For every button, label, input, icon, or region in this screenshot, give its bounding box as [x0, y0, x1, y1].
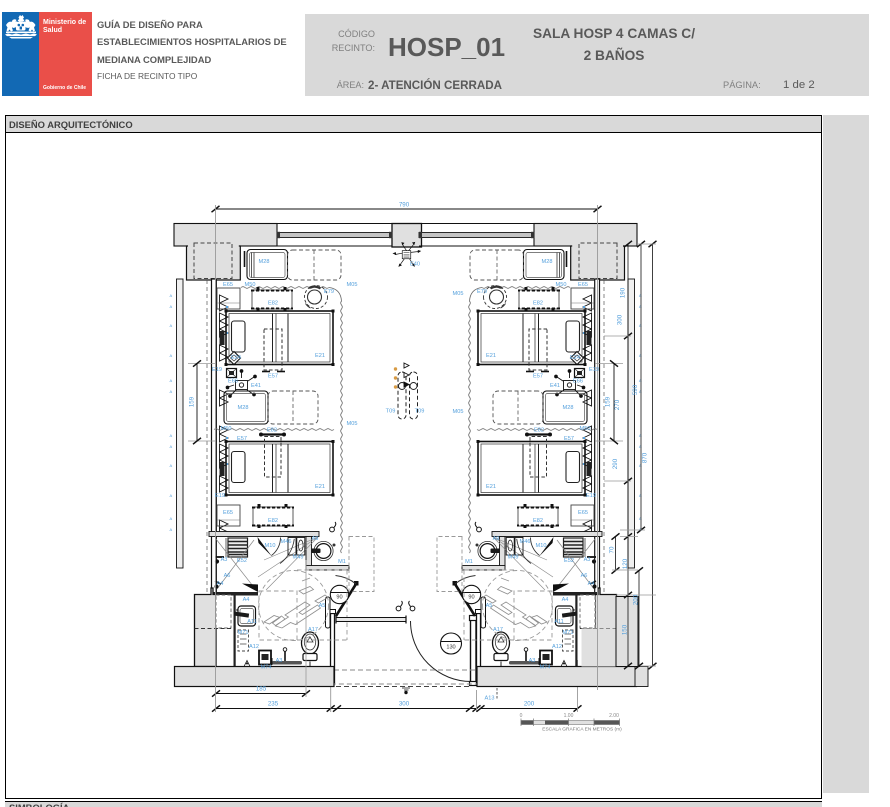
svg-text:M28: M28	[542, 259, 553, 265]
svg-text:A: A	[170, 304, 173, 309]
svg-text:A6: A6	[581, 573, 588, 579]
svg-text:200: 200	[524, 701, 535, 708]
svg-text:E40: E40	[410, 262, 420, 268]
svg-text:M46: M46	[281, 539, 292, 545]
svg-text:A: A	[170, 433, 173, 438]
svg-text:M49: M49	[508, 555, 519, 561]
svg-text:150: 150	[622, 624, 629, 635]
svg-text:90: 90	[336, 595, 342, 601]
svg-text:A4: A4	[562, 597, 569, 603]
svg-text:M10: M10	[265, 543, 276, 549]
svg-text:120: 120	[622, 558, 629, 569]
svg-text:E41: E41	[550, 383, 560, 389]
svg-text:M50: M50	[556, 282, 567, 288]
svg-text:E82: E82	[534, 428, 544, 434]
svg-text:E19: E19	[215, 493, 225, 499]
svg-text:870: 870	[642, 452, 649, 463]
svg-text:A: A	[170, 444, 173, 449]
svg-text:A5: A5	[486, 603, 493, 609]
svg-text:A13: A13	[485, 696, 495, 702]
svg-text:A: A	[170, 323, 173, 328]
svg-text:130: 130	[446, 645, 455, 651]
svg-text:A3: A3	[584, 557, 591, 563]
svg-text:E52: E52	[564, 558, 574, 564]
svg-text:M50: M50	[245, 282, 256, 288]
svg-text:A9: A9	[312, 536, 319, 542]
svg-text:A: A	[170, 293, 173, 298]
svg-text:A: A	[170, 463, 173, 468]
svg-text:A5: A5	[319, 603, 326, 609]
svg-text:190: 190	[620, 287, 627, 298]
svg-text:90: 90	[468, 595, 474, 601]
svg-text:E82: E82	[533, 518, 543, 524]
svg-text:0: 0	[520, 713, 523, 719]
svg-text:M50: M50	[221, 426, 232, 432]
svg-text:M28: M28	[563, 405, 574, 411]
svg-text:300: 300	[399, 701, 410, 708]
svg-text:E57: E57	[533, 374, 543, 380]
svg-text:A4: A4	[217, 581, 224, 587]
svg-text:M1: M1	[338, 559, 346, 565]
svg-text:E21: E21	[315, 484, 325, 490]
svg-text:A4: A4	[588, 581, 595, 587]
svg-text:A: A	[170, 527, 173, 532]
svg-text:M74: M74	[261, 665, 272, 671]
svg-text:A9: A9	[493, 536, 500, 542]
svg-text:A17: A17	[308, 627, 318, 633]
svg-text:E82: E82	[267, 428, 277, 434]
svg-text:270: 270	[614, 399, 621, 410]
svg-text:E65: E65	[223, 282, 233, 288]
svg-text:M05: M05	[453, 409, 464, 415]
svg-text:E79: E79	[324, 289, 334, 295]
svg-text:A11: A11	[247, 619, 257, 625]
svg-text:ESCALA GRAFICA EN METROS (m): ESCALA GRAFICA EN METROS (m)	[542, 727, 622, 733]
svg-text:M71: M71	[563, 630, 574, 636]
svg-text:M05: M05	[347, 421, 358, 427]
svg-text:E57: E57	[564, 436, 574, 442]
svg-text:E19: E19	[589, 367, 599, 373]
svg-text:E66: E66	[573, 379, 583, 385]
svg-text:E21: E21	[486, 353, 496, 359]
svg-text:A: A	[170, 493, 173, 498]
svg-text:M05: M05	[347, 282, 358, 288]
svg-text:A: A	[170, 353, 173, 358]
svg-text:290: 290	[612, 458, 619, 469]
svg-text:2.00: 2.00	[609, 713, 619, 719]
svg-text:E24: E24	[231, 355, 241, 361]
svg-text:E19: E19	[212, 367, 222, 373]
svg-text:M49: M49	[293, 555, 304, 561]
svg-text:M28: M28	[259, 259, 270, 265]
svg-text:790: 790	[399, 202, 410, 209]
svg-text:M10: M10	[536, 543, 547, 549]
svg-text:M28: M28	[238, 405, 249, 411]
svg-text:70: 70	[609, 546, 616, 553]
svg-text:E66: E66	[228, 379, 238, 385]
svg-text:A12: A12	[552, 644, 562, 650]
svg-text:A4: A4	[243, 597, 250, 603]
svg-text:M74: M74	[540, 665, 551, 671]
svg-text:E82: E82	[268, 301, 278, 307]
svg-text:E19: E19	[586, 493, 596, 499]
svg-text:E65: E65	[578, 282, 588, 288]
svg-text:A3: A3	[221, 557, 228, 563]
svg-text:1.00: 1.00	[564, 713, 574, 719]
svg-text:A: A	[170, 389, 173, 394]
svg-text:M50: M50	[580, 426, 591, 432]
svg-text:590: 590	[632, 384, 639, 395]
svg-text:A: A	[170, 378, 173, 383]
svg-text:235: 235	[268, 701, 279, 708]
svg-text:E57: E57	[237, 436, 247, 442]
svg-text:A6: A6	[224, 573, 231, 579]
svg-text:A11: A11	[554, 619, 564, 625]
svg-text:E41: E41	[251, 383, 261, 389]
svg-text:E82: E82	[268, 518, 278, 524]
svg-text:200: 200	[633, 594, 640, 605]
svg-text:M46: M46	[520, 539, 531, 545]
svg-text:M71: M71	[238, 630, 249, 636]
svg-text:E57: E57	[268, 374, 278, 380]
svg-text:159: 159	[605, 396, 612, 407]
svg-text:159: 159	[189, 396, 196, 407]
svg-text:T09: T09	[386, 409, 396, 415]
svg-text:A17: A17	[493, 627, 503, 633]
svg-text:A12: A12	[249, 644, 259, 650]
svg-text:T09: T09	[415, 409, 425, 415]
svg-text:A3: A3	[529, 658, 536, 664]
svg-text:A3: A3	[276, 658, 283, 664]
svg-text:E82: E82	[533, 301, 543, 307]
svg-text:E65: E65	[223, 510, 233, 516]
svg-text:E24: E24	[570, 355, 580, 361]
svg-text:E65: E65	[578, 510, 588, 516]
svg-text:E21: E21	[486, 484, 496, 490]
svg-text:A: A	[170, 516, 173, 521]
svg-text:185: 185	[256, 686, 267, 693]
svg-text:E21: E21	[315, 353, 325, 359]
svg-text:M1: M1	[465, 559, 473, 565]
svg-text:E79: E79	[477, 289, 487, 295]
svg-text:M05: M05	[453, 291, 464, 297]
svg-text:300: 300	[617, 314, 624, 325]
svg-text:E52: E52	[237, 558, 247, 564]
